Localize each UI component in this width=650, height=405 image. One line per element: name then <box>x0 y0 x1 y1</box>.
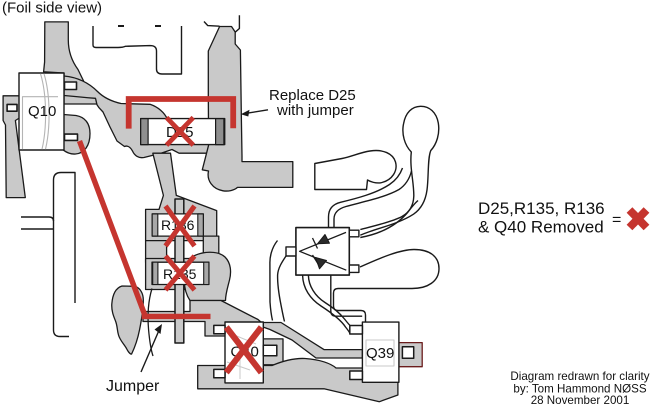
svg-text:Jumper: Jumper <box>106 378 160 395</box>
svg-text:& Q40 Removed: & Q40 Removed <box>478 218 604 237</box>
svg-text:=: = <box>612 212 621 229</box>
svg-text:Q39: Q39 <box>366 345 394 362</box>
svg-text:28 November 2001: 28 November 2001 <box>531 394 630 405</box>
svg-text:D25,R135, R136: D25,R135, R136 <box>478 199 605 218</box>
svg-text:Q10: Q10 <box>28 103 56 120</box>
svg-text:Diagram redrawn for clarity: Diagram redrawn for clarity <box>510 370 649 383</box>
svg-text:with jumper: with jumper <box>276 102 354 119</box>
svg-text:(Foil side view): (Foil side view) <box>2 0 102 17</box>
